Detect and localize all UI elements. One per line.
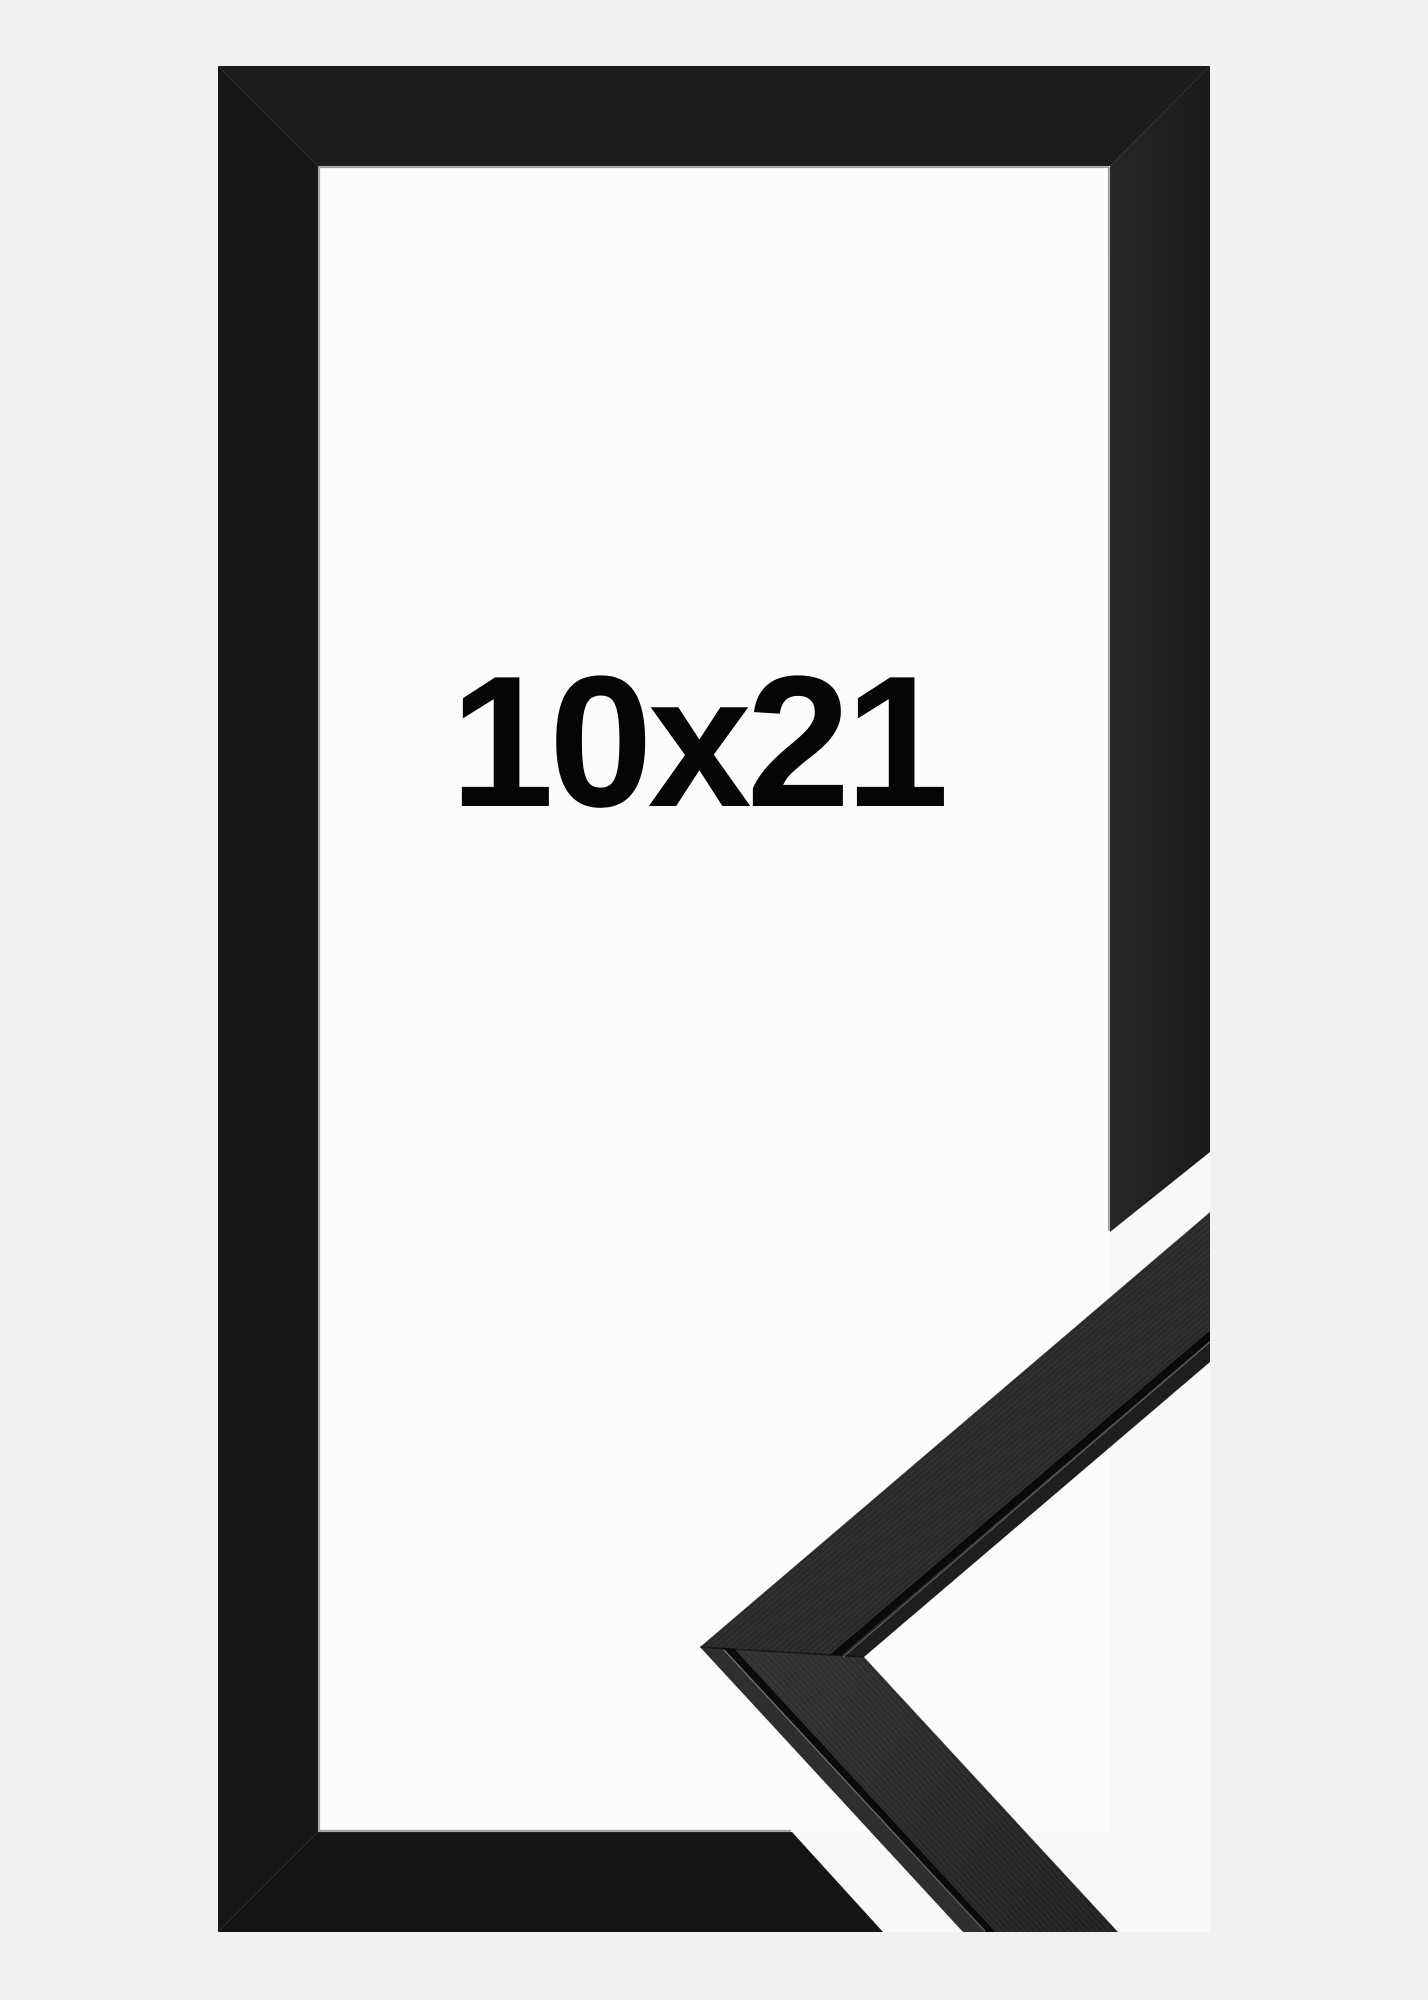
product-image-stage: 10x21	[0, 0, 1428, 2000]
frame-right-border	[1110, 66, 1210, 1232]
frame-top-border	[218, 66, 1210, 166]
frame-bottom-border	[218, 1832, 883, 1932]
frame-opening	[318, 166, 1110, 1832]
frame-product-illustration	[0, 0, 1428, 2000]
size-label: 10x21	[318, 648, 1076, 835]
frame-left-border	[218, 66, 318, 1932]
